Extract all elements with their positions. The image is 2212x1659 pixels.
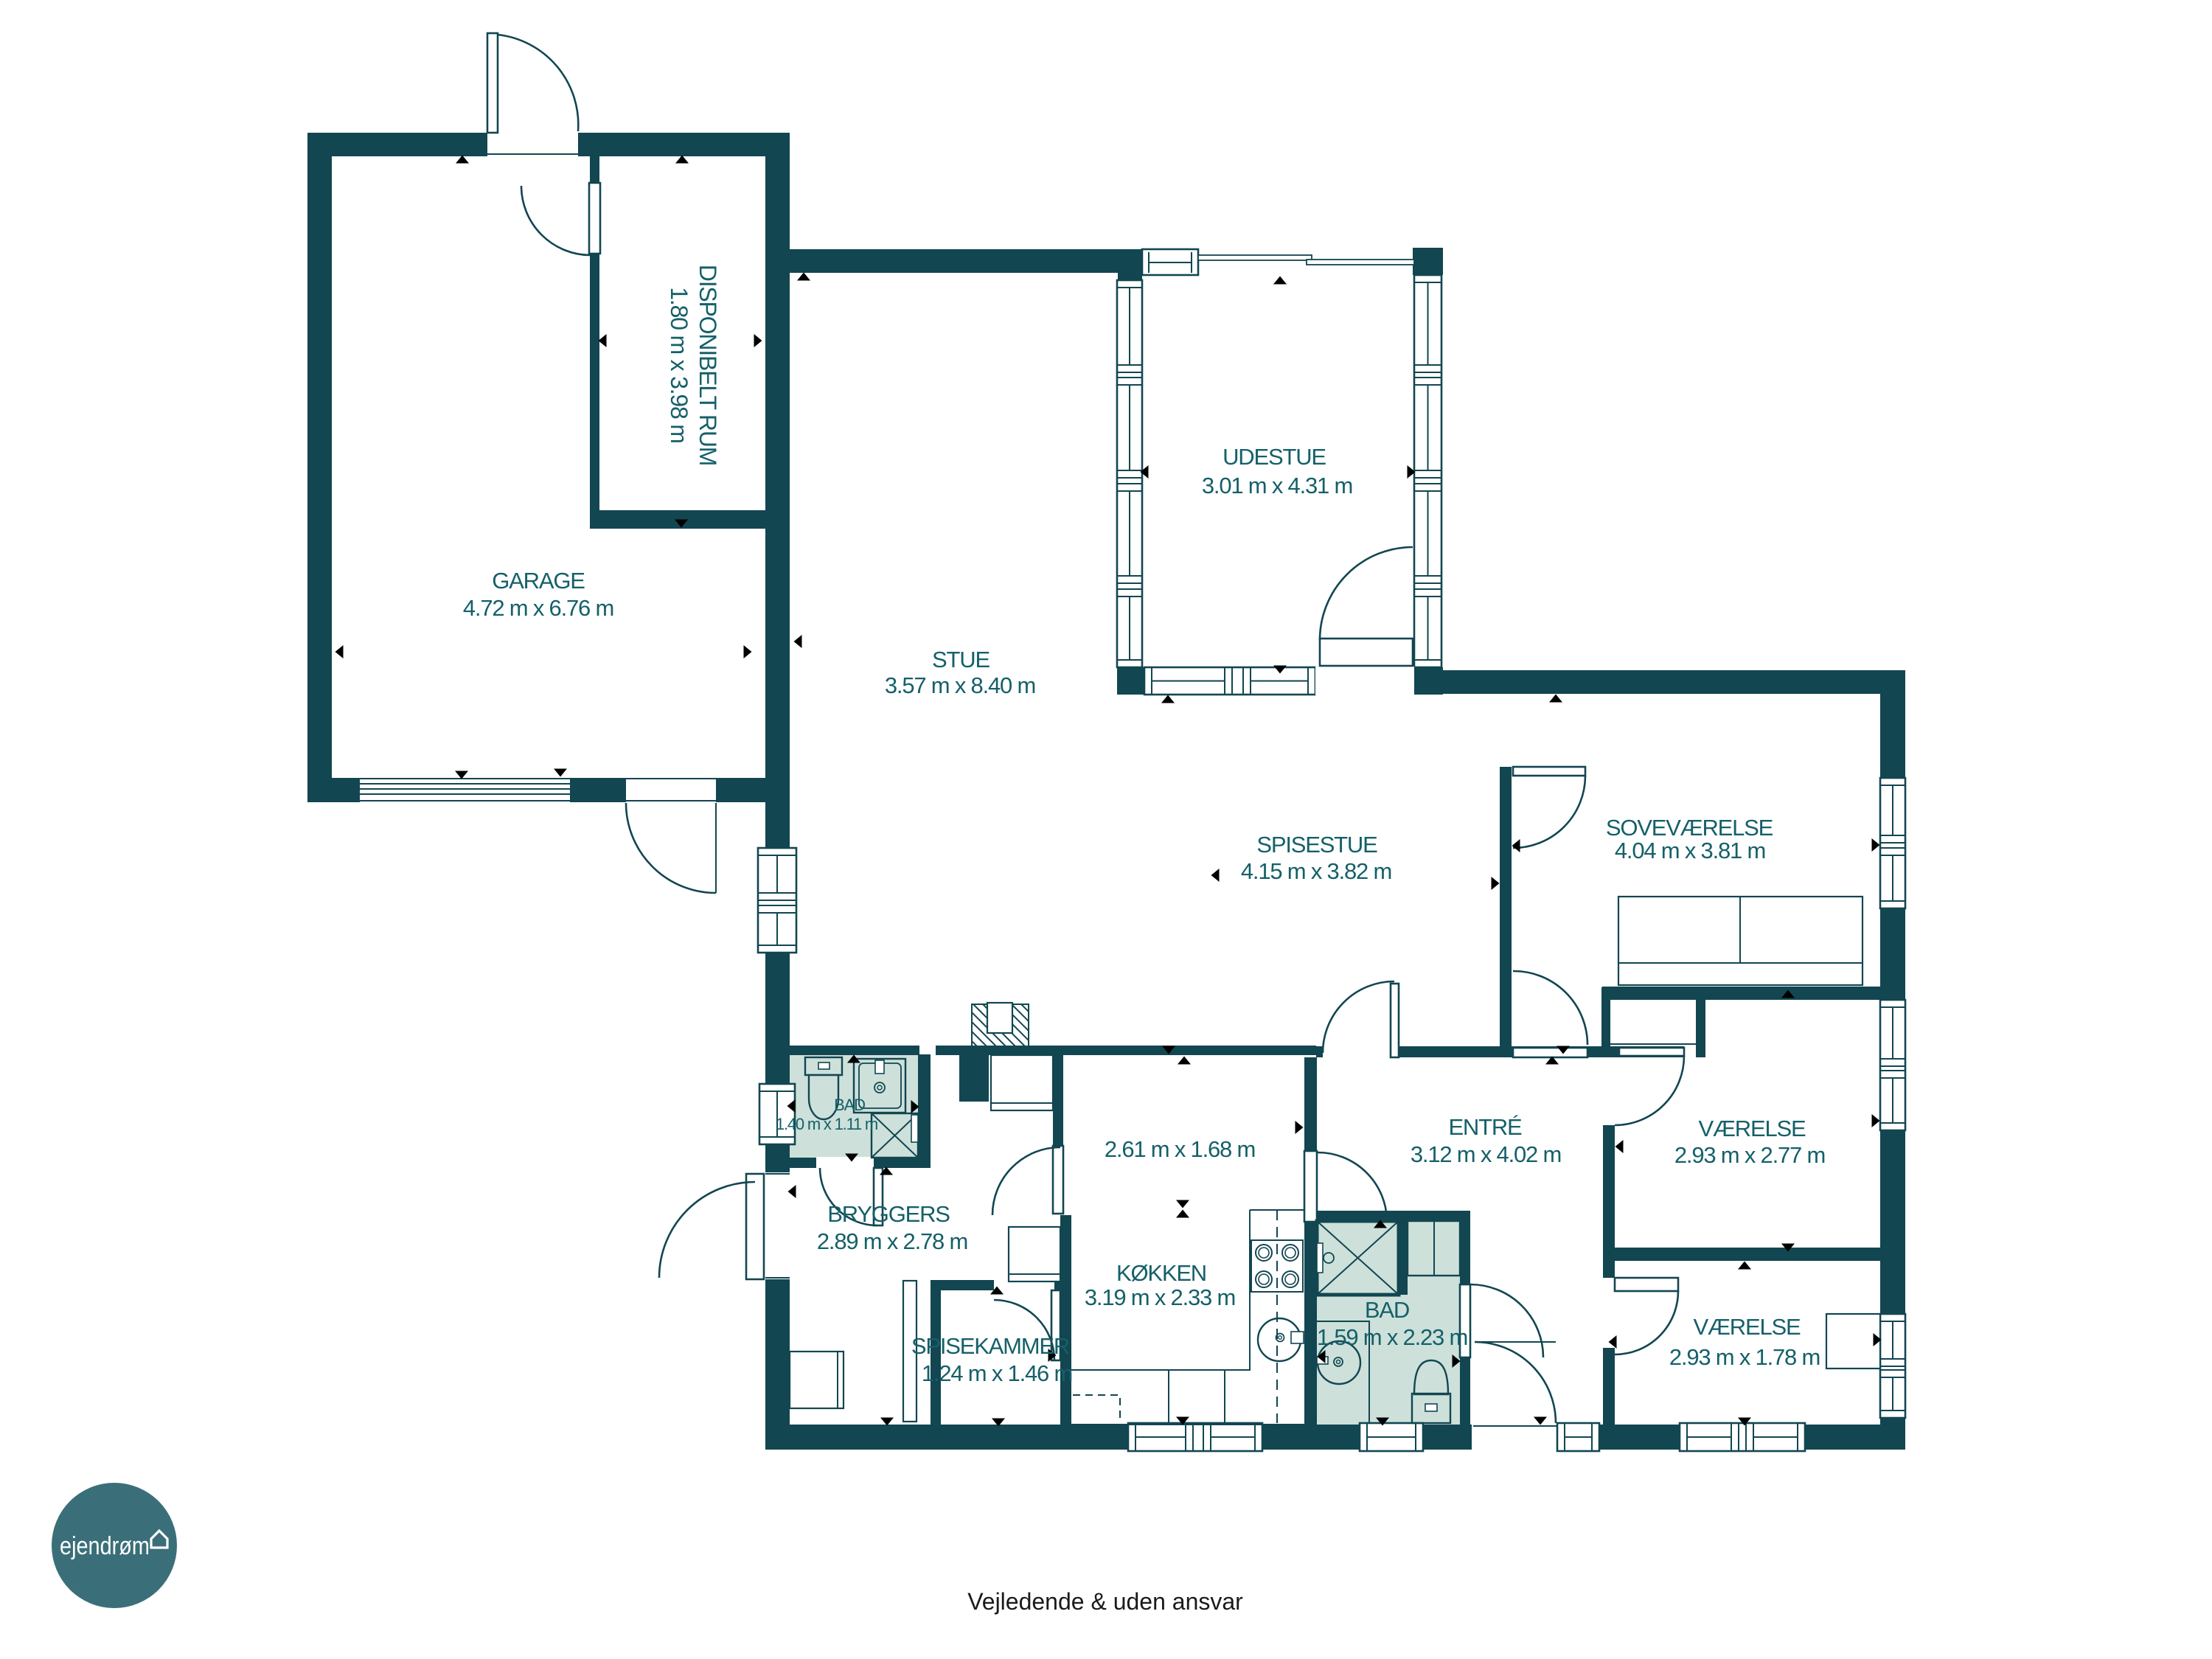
svg-text:Vejledende & uden ansvar: Vejledende & uden ansvar: [967, 1588, 1243, 1615]
svg-text:1.40 m x 1.11 m: 1.40 m x 1.11 m: [776, 1115, 877, 1133]
svg-text:3.57 m x 8.40 m: 3.57 m x 8.40 m: [885, 672, 1035, 698]
svg-text:VÆRELSE: VÆRELSE: [1694, 1314, 1801, 1340]
svg-text:BAD: BAD: [834, 1096, 865, 1114]
svg-text:UDESTUE: UDESTUE: [1222, 444, 1326, 470]
svg-text:4.04 m x 3.81 m: 4.04 m x 3.81 m: [1615, 838, 1765, 863]
svg-text:STUE: STUE: [932, 647, 990, 672]
svg-text:GARAGE: GARAGE: [492, 568, 585, 594]
svg-text:3.12 m x 4.02 m: 3.12 m x 4.02 m: [1411, 1141, 1561, 1167]
svg-text:SOVEVÆRELSE: SOVEVÆRELSE: [1606, 815, 1773, 841]
svg-text:1.59 m x 2.23 m: 1.59 m x 2.23 m: [1317, 1324, 1467, 1350]
svg-text:VÆRELSE: VÆRELSE: [1699, 1116, 1806, 1141]
svg-text:2.93 m x 2.77 m: 2.93 m x 2.77 m: [1674, 1142, 1825, 1168]
svg-text:DISPONIBELT RUM: DISPONIBELT RUM: [695, 265, 721, 465]
svg-text:BAD: BAD: [1365, 1297, 1409, 1323]
svg-text:1.24 m x 1.46 m: 1.24 m x 1.46 m: [922, 1360, 1072, 1386]
svg-text:KØKKEN: KØKKEN: [1116, 1260, 1206, 1286]
svg-text:SPISESTUE: SPISESTUE: [1256, 832, 1377, 858]
svg-text:2.93 m x 1.78 m: 2.93 m x 1.78 m: [1669, 1344, 1820, 1370]
svg-text:3.01 m x 4.31 m: 3.01 m x 4.31 m: [1202, 473, 1352, 498]
svg-text:4.72 m x 6.76 m: 4.72 m x 6.76 m: [463, 595, 613, 621]
svg-text:4.15 m x 3.82 m: 4.15 m x 3.82 m: [1241, 858, 1391, 884]
svg-text:ejendrøm: ejendrøm: [60, 1532, 150, 1560]
svg-text:3.19 m x 2.33 m: 3.19 m x 2.33 m: [1085, 1284, 1235, 1310]
svg-text:1.80 m x 3.98 m: 1.80 m x 3.98 m: [666, 287, 692, 442]
svg-text:BRYGGERS: BRYGGERS: [827, 1201, 950, 1227]
svg-text:SPISEKAMMER: SPISEKAMMER: [911, 1333, 1069, 1359]
svg-text:ENTRÉ: ENTRÉ: [1448, 1114, 1522, 1140]
svg-text:2.61 m x 1.68 m: 2.61 m x 1.68 m: [1105, 1136, 1255, 1162]
svg-text:2.89 m x 2.78 m: 2.89 m x 2.78 m: [817, 1228, 967, 1254]
